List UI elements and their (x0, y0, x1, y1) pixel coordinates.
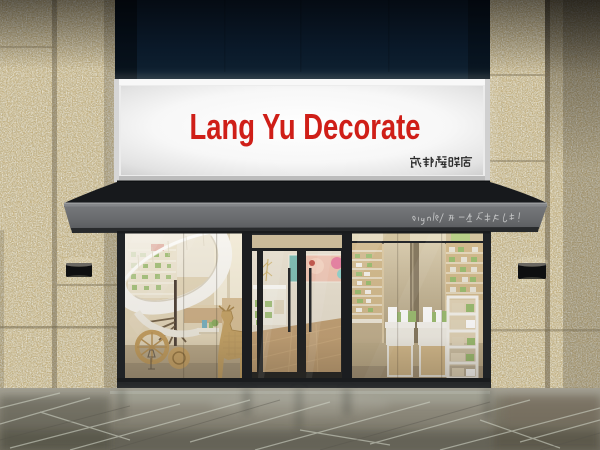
svg-text:Lang Yu Decorate: Lang Yu Decorate (190, 106, 421, 147)
